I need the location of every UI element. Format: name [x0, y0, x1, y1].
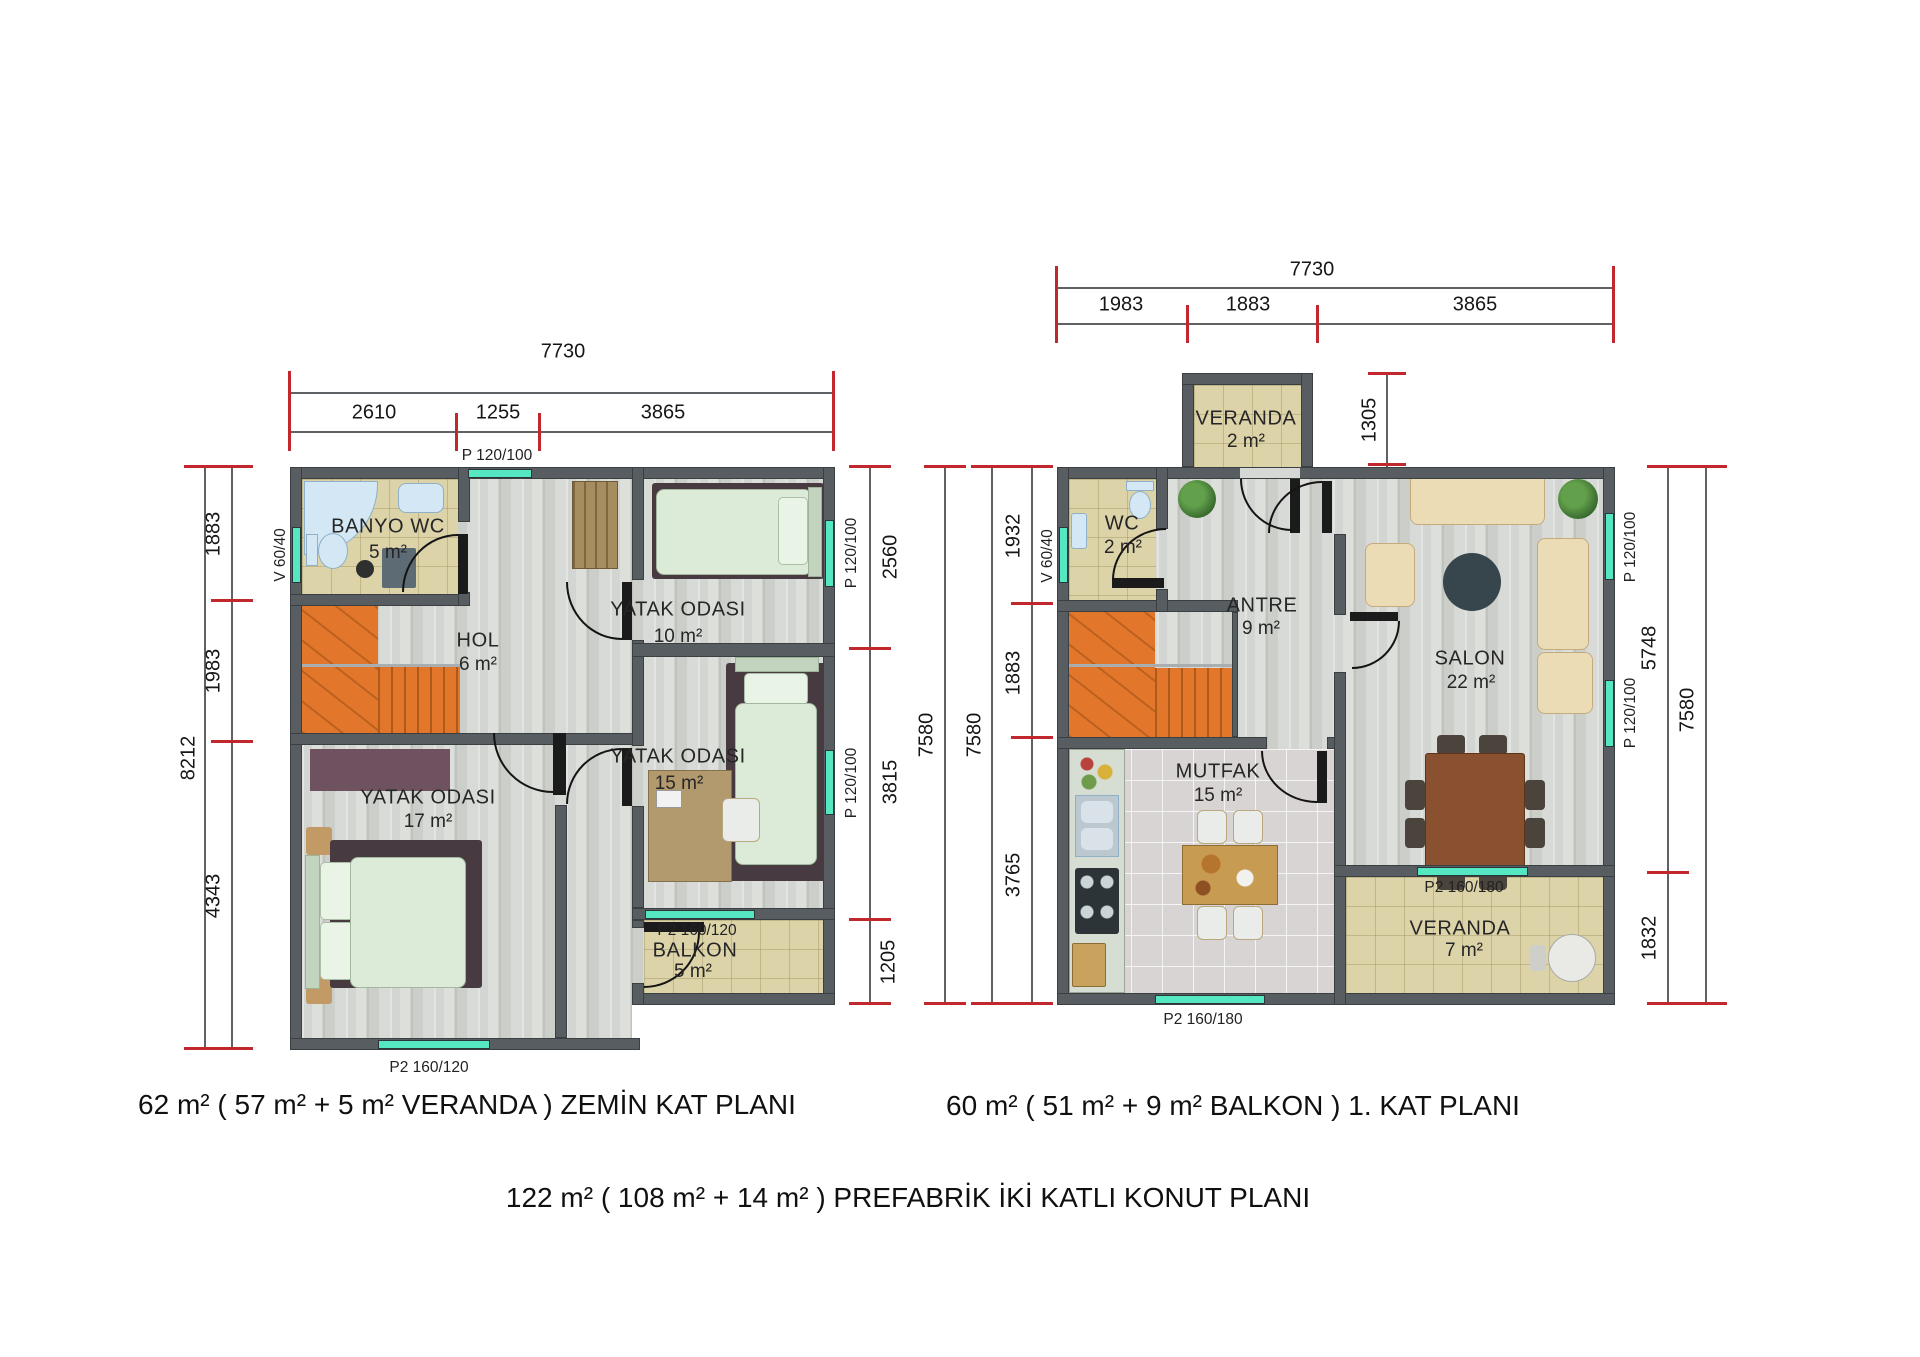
wc-area: 2 m² — [1104, 537, 1142, 559]
first-wall-top — [1057, 467, 1615, 479]
first-dim-line-right-segs — [1667, 467, 1669, 1005]
ground-dim-line-right-total — [944, 467, 946, 1005]
dim-tick — [1368, 372, 1406, 375]
corridor-wall-a — [632, 467, 644, 580]
dim-tick — [288, 413, 291, 451]
dim-tick — [1647, 465, 1689, 468]
ground-stairs-landing-line — [302, 664, 460, 667]
kitchen-chair-icon — [1197, 906, 1227, 940]
dim-tick — [211, 465, 253, 468]
first-dim-line-right-total — [1705, 467, 1707, 1005]
salon-window-lower — [1605, 680, 1614, 747]
yatak10-label: YATAK ODASI — [610, 599, 746, 622]
ground-window-left — [292, 527, 301, 583]
ground-window-right-lower-label: P 120/100 — [843, 748, 861, 818]
bedroom17-pillow — [320, 922, 354, 980]
stairs-rail-wall — [1232, 612, 1238, 737]
ground-dim-right-seg3: 1205 — [878, 940, 901, 985]
balkon-area: 5 m² — [674, 961, 712, 983]
wc-window — [1059, 527, 1068, 583]
dim-tick — [1011, 602, 1053, 605]
first-dim-line-top-total — [1057, 287, 1615, 289]
banyo-wall-bottom — [290, 594, 470, 606]
ground-dim-right-total: 7580 — [916, 713, 939, 758]
mutfak-wall-top-a — [1057, 737, 1267, 749]
stove-icon — [1075, 868, 1119, 934]
coffee-table-icon — [1443, 553, 1501, 611]
ground-dim-right-seg1: 2560 — [880, 535, 903, 580]
dim-tick — [832, 371, 835, 415]
ground-wall-top — [290, 467, 835, 479]
kitchen-chair-icon — [1233, 810, 1263, 844]
salon-upper-door-leaf — [1322, 481, 1332, 533]
dim-tick — [1368, 463, 1406, 466]
balkon-wall-bottom — [632, 993, 835, 1005]
bedroom17-door-leaf — [553, 733, 566, 795]
dining-chair-icon — [1437, 735, 1465, 755]
ground-dim-line-right-segs — [869, 467, 871, 1005]
mutfak-label: MUTFAK — [1176, 761, 1261, 784]
dim-tick — [1055, 266, 1058, 310]
balkon-window-label: P2 160/120 — [657, 922, 736, 940]
dim-tick — [849, 465, 891, 468]
bedroom15-pillow — [744, 673, 808, 705]
center-wall-b — [1334, 672, 1346, 1005]
first-dim-left-seg3: 3765 — [1003, 853, 1026, 898]
dining-table-icon — [1425, 753, 1525, 868]
first-stairs-winders — [1069, 612, 1155, 737]
total-plan-caption: 122 m² ( 108 m² + 14 m² ) PREFABRİK İKİ … — [506, 1182, 1310, 1214]
hol-label: HOL — [457, 630, 500, 653]
sofa-two-seat — [1537, 538, 1589, 650]
kitchen-chair-icon — [1197, 810, 1227, 844]
bathroom-sink-icon — [398, 483, 444, 513]
ground-dim-line-top-total — [290, 392, 835, 394]
bedroom15-headboard — [735, 657, 819, 672]
dim-tick — [1647, 1002, 1689, 1005]
dim-tick — [1612, 305, 1615, 343]
salon-window-upper-label: P 120/100 — [1622, 512, 1640, 582]
ground-dim-line-top-segs — [290, 431, 835, 433]
kitchen-sink-basin — [1081, 801, 1113, 823]
veranda2-wall-left — [1182, 373, 1194, 467]
bedroom17-dresser — [310, 749, 450, 791]
first-dim-left-seg2: 1883 — [1003, 651, 1026, 696]
entrance-opening — [1240, 468, 1300, 478]
dim-tick — [971, 465, 1013, 468]
balkon-wall-left-b — [632, 983, 644, 1005]
veranda2-area: 2 m² — [1227, 431, 1265, 453]
ground-dim-left-seg2: 1983 — [203, 649, 226, 694]
wardrobe-icon — [572, 481, 618, 569]
dim-tick — [211, 599, 253, 602]
ground-dim-top-total: 7730 — [541, 341, 586, 364]
dim-tick — [1011, 465, 1053, 468]
ground-dim-line-left-segs — [231, 467, 233, 1050]
dim-tick — [1316, 305, 1319, 343]
first-dim-top-seg2: 1883 — [1226, 294, 1271, 317]
dining-chair-icon — [1525, 780, 1545, 810]
dining-chair-icon — [1405, 780, 1425, 810]
center-wall-a — [1334, 534, 1346, 615]
veranda7-window-label: P2 160/180 — [1424, 879, 1503, 897]
wc-wall-right-upper — [1156, 467, 1168, 529]
sofa-three-seat — [1410, 473, 1545, 525]
dim-tick — [1647, 871, 1689, 874]
floor-plan-canvas: BANYO WC 5 m² HOL 6 m² YATAK ODASI 10 m²… — [0, 0, 1920, 1357]
yatak10-area: 10 m² — [654, 626, 703, 648]
kitchen-decor — [1075, 752, 1119, 792]
dim-tick — [1011, 1002, 1053, 1005]
first-stairs-landing-line — [1069, 664, 1232, 667]
fridge-icon — [1072, 943, 1106, 987]
salon-label: SALON — [1435, 648, 1506, 671]
nightstand-icon — [306, 827, 332, 855]
ground-dim-top-seg2: 1255 — [476, 402, 521, 425]
salon-mid-door-leaf — [1350, 612, 1398, 621]
ground-dim-right-seg2: 3815 — [880, 760, 903, 805]
balkon-label: BALKON — [653, 940, 738, 963]
wc-wall-bottom — [1057, 600, 1238, 612]
dim-tick — [1186, 305, 1189, 343]
ground-window-right-upper-label: P 120/100 — [843, 518, 861, 588]
kitchen-chair-icon — [1233, 906, 1263, 940]
first-dim-right-total: 7580 — [1677, 688, 1700, 733]
ground-window-top — [468, 469, 532, 478]
ground-dim-top-seg1: 2610 — [352, 402, 397, 425]
dim-tick — [211, 1047, 253, 1050]
dim-tick — [1685, 465, 1727, 468]
first-dim-line-top-segs — [1057, 323, 1615, 325]
dim-tick — [849, 918, 891, 921]
ground-wood-floor-extension — [302, 993, 632, 1038]
yatak15-label: YATAK ODASI — [610, 746, 746, 769]
first-dim-top-total: 7730 — [1290, 259, 1335, 282]
veranda-table-icon — [1548, 934, 1596, 982]
desk-chair-icon — [722, 798, 760, 842]
ground-wall-mid — [290, 733, 644, 745]
veranda7-label: VERANDA — [1410, 918, 1511, 941]
wc-label: WC — [1105, 513, 1140, 536]
wc-sink-icon — [1071, 513, 1087, 549]
bedroom17-bed — [350, 857, 466, 988]
antre-label: ANTRE — [1227, 595, 1298, 618]
first-dim-line-left-total — [991, 467, 993, 1005]
dim-tick — [849, 647, 891, 650]
ground-window-bottom — [378, 1040, 490, 1049]
dim-tick — [538, 413, 541, 451]
dim-tick — [971, 1002, 1013, 1005]
wc-toilet-tank-icon — [1126, 481, 1154, 491]
yatak15-area: 15 m² — [655, 773, 704, 795]
salon-window-lower-label: P 120/100 — [1622, 678, 1640, 748]
dim-tick — [211, 740, 253, 743]
dim-tick — [1011, 736, 1053, 739]
bedroom17-wall-right — [555, 805, 567, 1038]
veranda-depth-text: 1305 — [1359, 398, 1382, 443]
armchair-icon — [1365, 543, 1415, 607]
first-dim-left-seg1: 1932 — [1003, 514, 1026, 559]
yatak17-label: YATAK ODASI — [360, 787, 496, 810]
dim-tick — [288, 371, 291, 415]
dining-chair-icon — [1479, 735, 1507, 755]
dim-tick — [455, 413, 458, 451]
dim-tick — [1055, 305, 1058, 343]
dim-tick — [924, 465, 966, 468]
first-stairs-steps — [1155, 668, 1232, 737]
first-dim-right-seg2: 1832 — [1639, 916, 1662, 961]
ground-dim-left-seg3: 4343 — [203, 874, 226, 919]
kitchen-table-icon — [1182, 845, 1278, 905]
banyo-wall-right-lower — [458, 592, 470, 606]
bedroom10-pillow — [778, 497, 808, 565]
armchair-icon — [1537, 652, 1593, 714]
ground-dim-left-total: 8212 — [178, 736, 201, 781]
ground-stairs-winders — [302, 606, 378, 733]
first-dim-top-seg1: 1983 — [1099, 294, 1144, 317]
veranda7-area: 7 m² — [1445, 940, 1483, 962]
ground-stairs-steps — [378, 667, 460, 733]
veranda-chair-icon — [1530, 945, 1546, 971]
mutfak-window — [1155, 995, 1265, 1004]
dim-tick — [1612, 266, 1615, 310]
toilet-tank-icon — [306, 534, 318, 566]
bedroom17-pillow — [320, 862, 354, 920]
veranda2-wall-right — [1301, 373, 1313, 467]
dim-tick — [924, 1002, 966, 1005]
first-dim-top-seg3: 3865 — [1453, 294, 1498, 317]
kitchen-sink-basin — [1081, 828, 1113, 850]
ground-window-right-lower — [825, 750, 834, 815]
bedroom17-headboard — [305, 855, 320, 989]
veranda7-window — [1417, 867, 1528, 876]
salon-area: 22 m² — [1447, 672, 1496, 694]
dim-tick — [1685, 1002, 1727, 1005]
dining-chair-icon — [1405, 818, 1425, 848]
ground-floor-caption: 62 m² ( 57 m² + 5 m² VERANDA ) ZEMİN KAT… — [138, 1089, 796, 1121]
plant-icon — [1558, 479, 1598, 519]
ground-dim-left-seg1: 1883 — [203, 512, 226, 557]
mutfak-window-label: P2 160/180 — [1163, 1011, 1242, 1029]
veranda2-label: VERANDA — [1196, 408, 1297, 431]
ground-dim-top-seg3: 3865 — [641, 402, 686, 425]
wc-wall-right-lower — [1156, 589, 1168, 612]
first-dim-left-total: 7580 — [964, 713, 987, 758]
plant-icon — [1178, 480, 1216, 518]
ground-window-right-upper — [825, 520, 834, 587]
banyo-label: BANYO WC — [331, 516, 445, 539]
dim-tick — [849, 1002, 891, 1005]
dining-chair-icon — [1525, 818, 1545, 848]
wc-window-label: V 60/40 — [1039, 529, 1057, 582]
balkon-window — [645, 910, 755, 919]
bedroom10-headboard — [808, 487, 822, 577]
first-floor-caption: 60 m² ( 51 m² + 9 m² BALKON ) 1. KAT PLA… — [946, 1090, 1520, 1122]
ground-window-bottom-label: P2 160/120 — [389, 1059, 468, 1077]
balkon-wall-left-a — [632, 920, 644, 928]
banyo-door-leaf — [458, 534, 468, 594]
mutfak-door-leaf — [1317, 751, 1327, 803]
veranda-depth-line — [1386, 373, 1388, 467]
corridor-wall-c — [632, 806, 644, 908]
ground-window-top-label: P 120/100 — [462, 447, 532, 465]
salon-window-upper — [1605, 513, 1614, 580]
banyo-area: 5 m² — [369, 542, 407, 564]
yatak17-area: 17 m² — [404, 811, 453, 833]
antre-area: 9 m² — [1242, 618, 1280, 640]
hol-area: 6 m² — [459, 654, 497, 676]
dim-tick — [832, 413, 835, 451]
ground-window-left-label: V 60/40 — [272, 528, 290, 581]
first-dim-right-seg1: 5748 — [1639, 626, 1662, 671]
mutfak-area: 15 m² — [1194, 785, 1243, 807]
veranda2-wall-top — [1182, 373, 1313, 385]
